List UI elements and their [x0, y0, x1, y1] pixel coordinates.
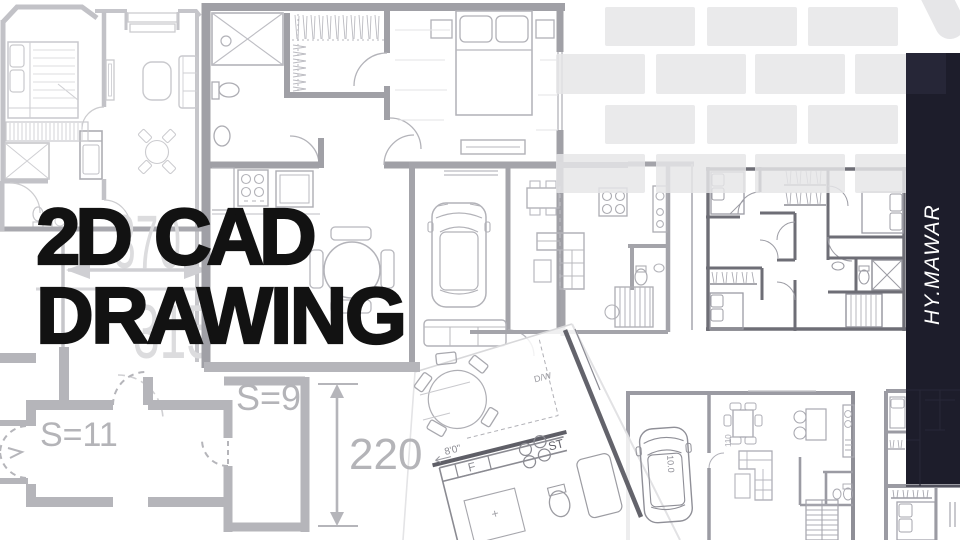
svg-text:220: 220	[349, 430, 422, 479]
svg-text:10.0: 10.0	[665, 455, 676, 473]
svg-text:S=9: S=9	[236, 377, 301, 418]
svg-text:110: 110	[724, 434, 733, 447]
svg-text:S=11: S=11	[40, 416, 118, 454]
